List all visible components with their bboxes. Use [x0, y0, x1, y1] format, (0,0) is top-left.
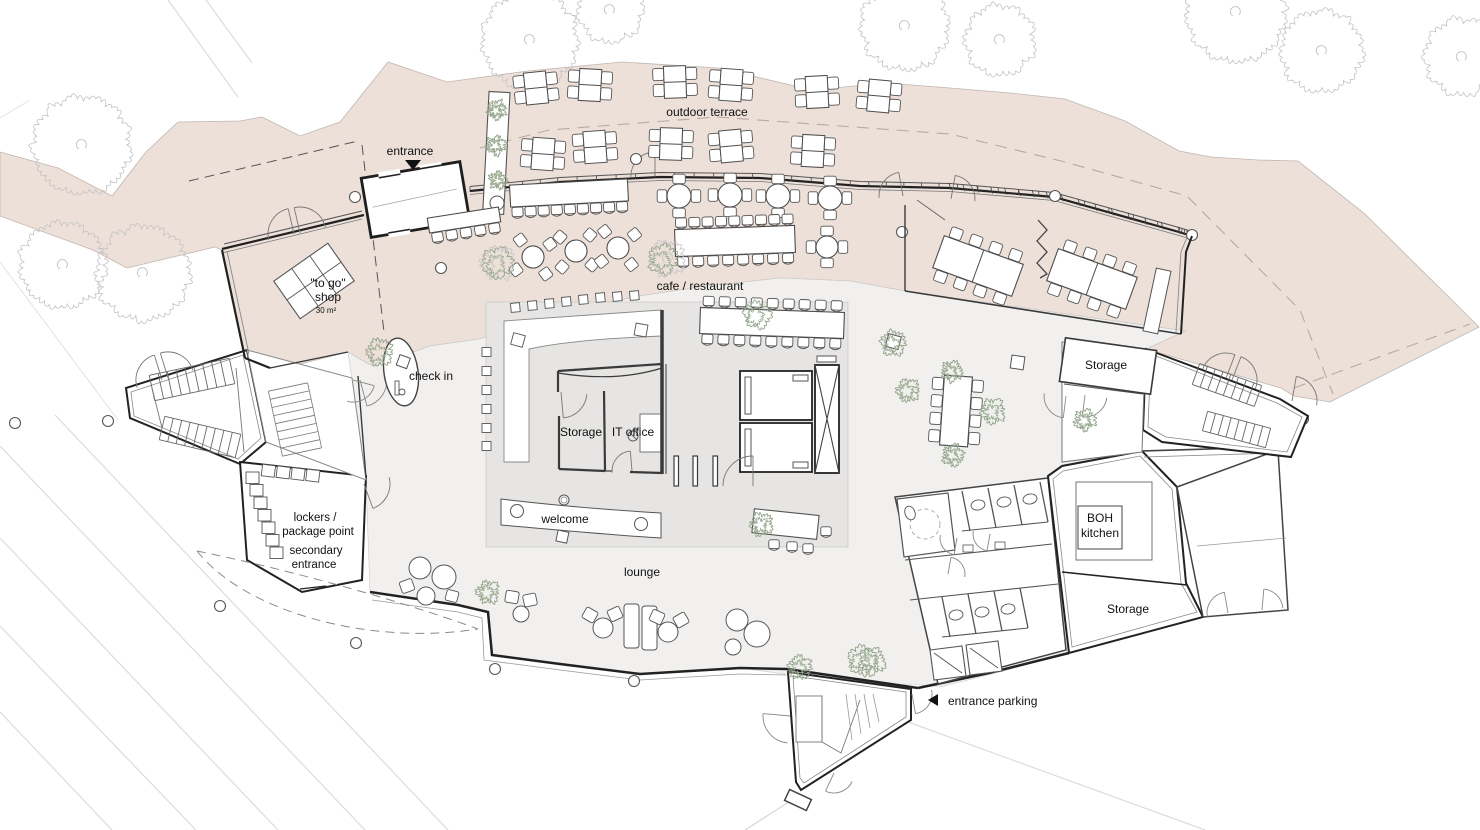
svg-text:Storage: Storage	[1107, 602, 1149, 616]
svg-text:IT office: IT office	[612, 425, 655, 439]
svg-text:kitchen: kitchen	[1081, 526, 1119, 540]
svg-text:"to go": "to go"	[310, 276, 345, 290]
svg-text:shop: shop	[315, 290, 341, 304]
svg-text:outdoor terrace: outdoor terrace	[666, 105, 748, 119]
svg-text:entrance parking: entrance parking	[948, 694, 1037, 708]
svg-text:entrance: entrance	[387, 144, 434, 158]
svg-text:30 m²: 30 m²	[316, 306, 337, 315]
svg-text:Storage: Storage	[1085, 358, 1127, 372]
svg-text:Storage: Storage	[560, 425, 602, 439]
svg-text:check in: check in	[409, 369, 453, 383]
svg-text:BOH: BOH	[1087, 511, 1113, 525]
svg-text:lounge: lounge	[624, 565, 660, 579]
svg-text:secondary: secondary	[289, 545, 342, 557]
svg-text:welcome: welcome	[540, 512, 589, 526]
svg-text:entrance: entrance	[292, 559, 337, 571]
svg-text:lockers /: lockers /	[294, 512, 338, 524]
svg-text:cafe / restaurant: cafe / restaurant	[657, 279, 744, 293]
svg-text:package point: package point	[282, 526, 354, 538]
